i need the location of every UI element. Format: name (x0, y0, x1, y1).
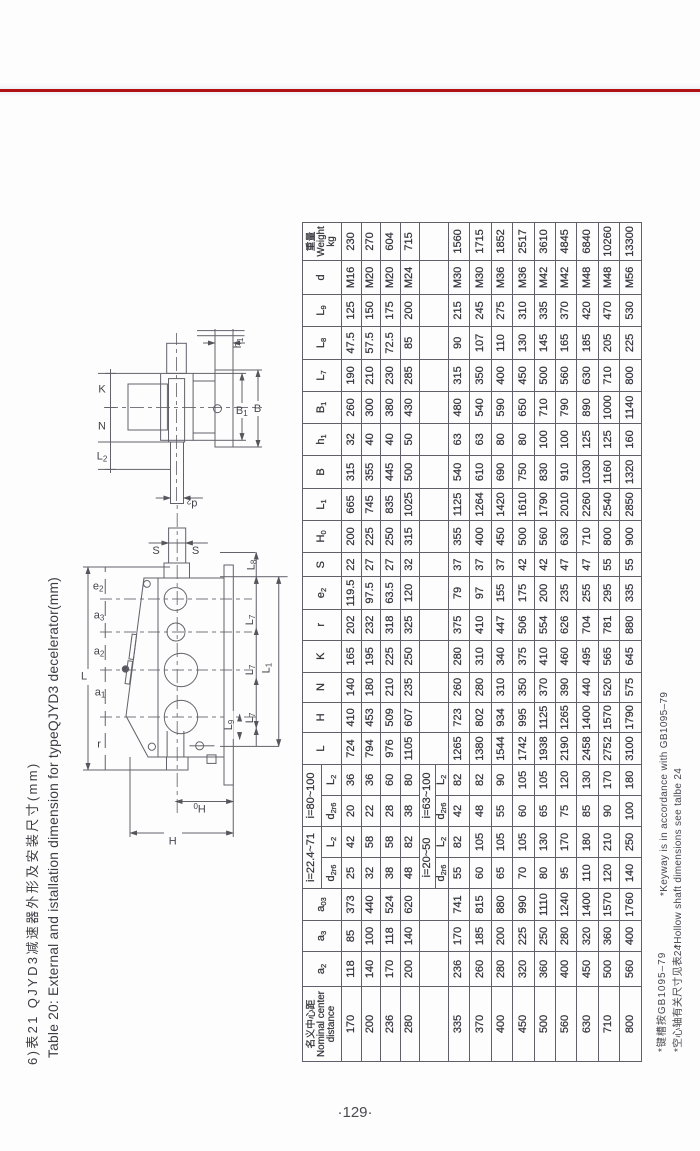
svg-text:B1: B1 (236, 405, 248, 418)
svg-text:a1: a1 (95, 687, 106, 700)
svg-text:L7: L7 (244, 614, 257, 625)
svg-text:L: L (81, 671, 87, 683)
svg-text:S: S (152, 545, 159, 557)
svg-text:r: r (97, 738, 101, 750)
svg-text:L1: L1 (260, 662, 273, 673)
svg-text:a2: a2 (94, 646, 105, 659)
svg-text:S: S (192, 545, 199, 557)
svg-text:B: B (254, 403, 261, 415)
svg-text:L7: L7 (244, 712, 257, 723)
svg-text:K: K (98, 384, 106, 396)
svg-text:h1: h1 (232, 337, 245, 348)
svg-text:H0: H0 (193, 802, 206, 815)
svg-text:a3: a3 (94, 609, 105, 622)
svg-text:d2: d2 (186, 497, 197, 510)
svg-text:N: N (98, 421, 106, 433)
svg-text:e2: e2 (93, 581, 104, 594)
svg-text:L2: L2 (97, 451, 108, 464)
svg-text:L8: L8 (245, 559, 257, 570)
svg-text:H: H (169, 835, 177, 847)
svg-text:L7: L7 (244, 664, 257, 675)
